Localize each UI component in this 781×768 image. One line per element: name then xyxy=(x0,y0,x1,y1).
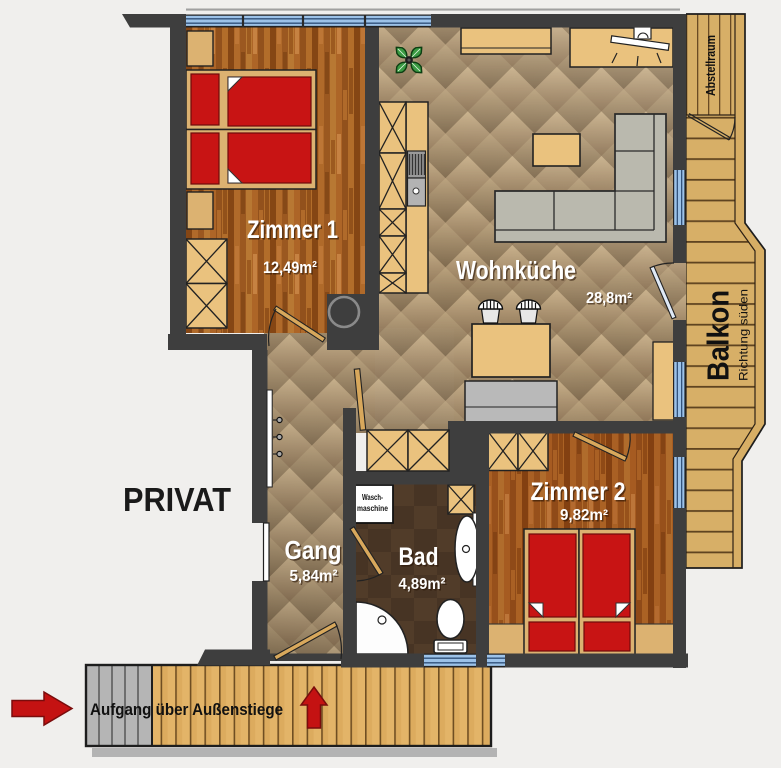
svg-text:12,49m²: 12,49m² xyxy=(263,258,317,277)
svg-text:Balkon: Balkon xyxy=(701,290,736,381)
svg-text:Bad: Bad xyxy=(399,543,439,571)
svg-text:Zimmer 1: Zimmer 1 xyxy=(247,216,338,244)
svg-text:Wohnküche: Wohnküche xyxy=(456,255,576,285)
svg-text:Richtung süden: Richtung süden xyxy=(737,289,751,381)
svg-text:Gang: Gang xyxy=(285,535,342,565)
svg-text:Aufgang über Außenstiege: Aufgang über Außenstiege xyxy=(90,700,283,719)
svg-text:28,8m²: 28,8m² xyxy=(586,290,632,307)
svg-text:9,82m²: 9,82m² xyxy=(560,507,608,524)
svg-text:maschine: maschine xyxy=(357,503,388,513)
svg-text:Zimmer 2: Zimmer 2 xyxy=(531,478,626,506)
svg-text:4,89m²: 4,89m² xyxy=(399,576,446,593)
svg-text:Wasch-: Wasch- xyxy=(362,492,383,502)
svg-text:Abstellraum: Abstellraum xyxy=(704,35,718,96)
svg-text:PRIVAT: PRIVAT xyxy=(123,481,231,518)
svg-text:5,84m²: 5,84m² xyxy=(290,568,338,585)
